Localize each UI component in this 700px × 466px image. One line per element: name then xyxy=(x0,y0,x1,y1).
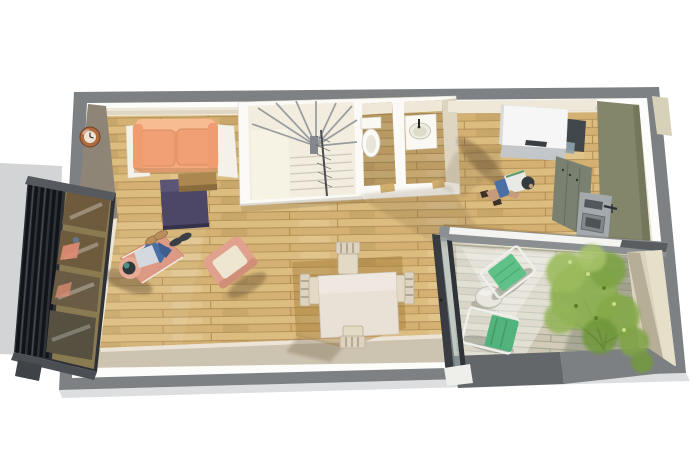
sofa xyxy=(126,118,238,178)
washroom-back-wall xyxy=(404,100,442,113)
person-reflection xyxy=(73,237,79,243)
wall-clock xyxy=(80,127,100,147)
stair-landing xyxy=(250,128,290,200)
sofa-arm xyxy=(133,124,143,170)
washbasin-vanity xyxy=(405,114,437,150)
sofa-shadow xyxy=(134,168,218,173)
wc-back-wall xyxy=(362,102,392,115)
toilet xyxy=(361,117,381,157)
sofa-cushion xyxy=(138,130,175,166)
floor-plan-canvas xyxy=(0,0,700,466)
dining-chair-bottom xyxy=(340,326,365,348)
door-handle xyxy=(439,298,442,301)
dining-chair-top xyxy=(336,242,360,274)
floor-plan-render xyxy=(0,0,700,466)
coffee-table xyxy=(178,172,217,192)
refrigerator-cabinet xyxy=(499,104,568,161)
sofa-arm xyxy=(208,123,218,170)
